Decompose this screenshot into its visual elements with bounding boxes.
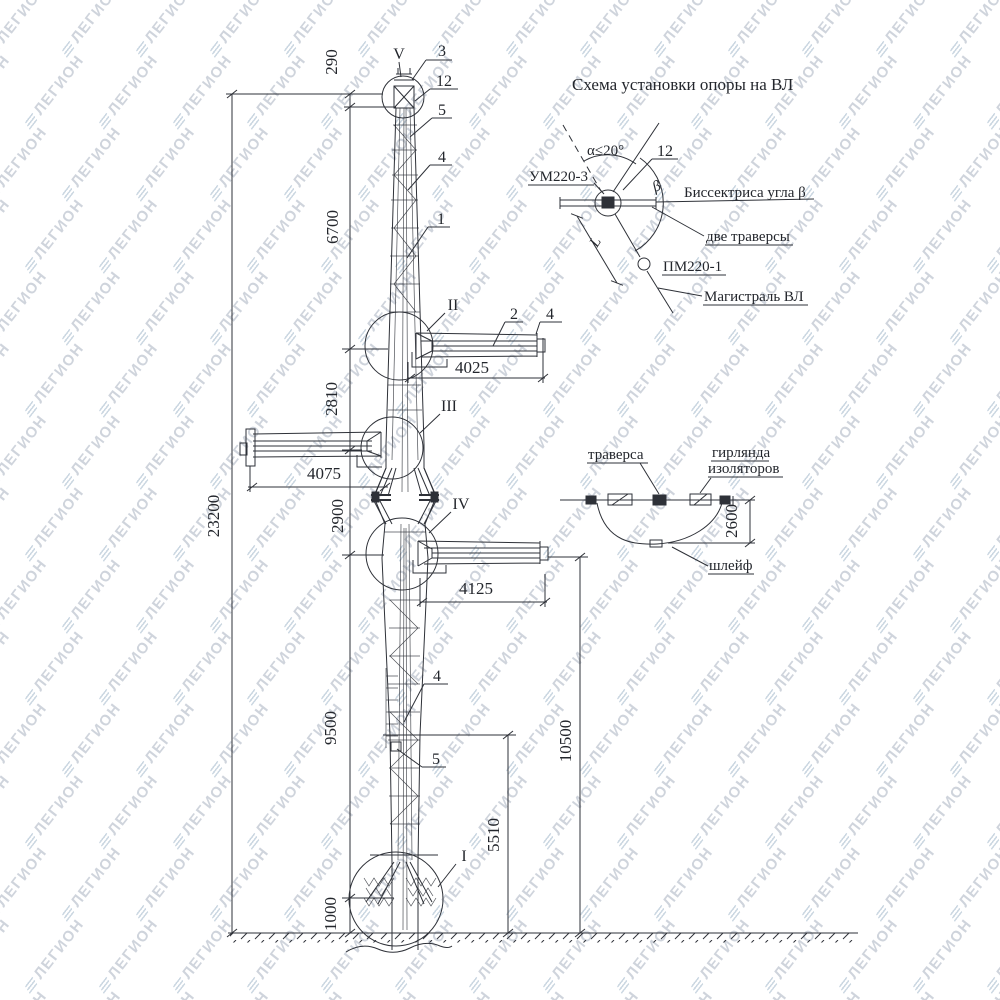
traverse-4 bbox=[413, 541, 548, 573]
tower-drawing: Схема установки опоры на ВЛ α≤20° 12 β У… bbox=[0, 0, 1000, 1000]
ground-line bbox=[228, 933, 858, 943]
part-label-2: 2 bbox=[510, 306, 518, 323]
dim-chain-2900: 2900 bbox=[328, 499, 347, 533]
part-label-4-trav2: 4 bbox=[546, 306, 554, 323]
part-label-4-low: 4 bbox=[433, 668, 441, 685]
dim-span-4025: 4025 bbox=[455, 358, 489, 377]
detail-label-iii: III bbox=[441, 398, 457, 415]
traverse-label: траверса bbox=[588, 447, 644, 463]
dim-right-10500: 10500 bbox=[556, 720, 575, 763]
dimension-lines bbox=[226, 90, 755, 937]
part-label-5-top: 5 bbox=[438, 102, 446, 119]
detail-label-iv: IV bbox=[453, 496, 470, 513]
mainline-label: Магистраль ВЛ bbox=[704, 289, 804, 305]
pm220-label: ПМ220-1 bbox=[663, 259, 722, 275]
length-label: L bbox=[586, 235, 605, 251]
detail-label-i: I bbox=[461, 848, 466, 865]
part-label-3: 3 bbox=[438, 43, 446, 60]
dim-chain-9500: 9500 bbox=[321, 711, 340, 745]
dim-sag-2600: 2600 bbox=[722, 504, 741, 538]
dim-chain-1000: 1000 bbox=[321, 897, 340, 931]
bisector-label: Биссектриса угла β bbox=[684, 185, 806, 201]
garland-label-1: гирлянда bbox=[712, 445, 771, 461]
part-label-1: 1 bbox=[437, 211, 445, 228]
two-traverses-label: две траверсы bbox=[706, 229, 790, 245]
dim-span-4075: 4075 bbox=[307, 464, 341, 483]
detail-label-ii: II bbox=[448, 297, 459, 314]
loop-label: шлейф bbox=[709, 558, 753, 574]
dim-chain-2810: 2810 bbox=[322, 382, 341, 416]
part-label-12: 12 bbox=[436, 73, 452, 90]
scheme-title: Схема установки опоры на ВЛ bbox=[572, 75, 794, 94]
tower-structure bbox=[346, 68, 452, 952]
part-label-5-low: 5 bbox=[432, 751, 440, 768]
part-label-4-top: 4 bbox=[438, 149, 446, 166]
dim-chain-290: 290 bbox=[322, 49, 341, 75]
alpha-label: α≤20° bbox=[587, 143, 624, 159]
detail-label-v: V bbox=[393, 46, 405, 63]
garland-label-2: изоляторов bbox=[708, 461, 780, 477]
dim-right-5510: 5510 bbox=[484, 818, 503, 852]
dim-total-23200: 23200 bbox=[204, 495, 223, 538]
part-label-12-scheme: 12 bbox=[657, 143, 673, 160]
um220-label: УМ220-3 bbox=[529, 169, 588, 185]
dim-span-4125: 4125 bbox=[459, 579, 493, 598]
beta-label: β bbox=[649, 178, 664, 196]
dim-chain-6700: 6700 bbox=[323, 210, 342, 244]
detail-circles bbox=[349, 76, 443, 946]
